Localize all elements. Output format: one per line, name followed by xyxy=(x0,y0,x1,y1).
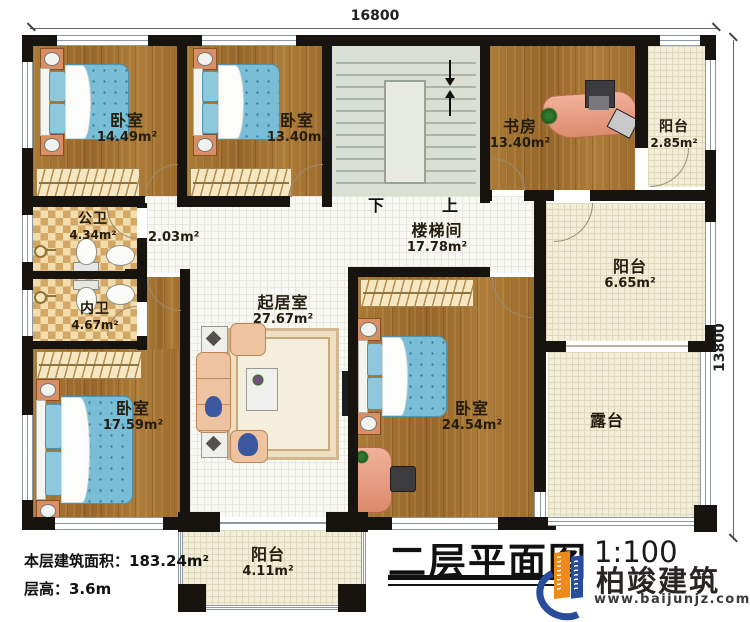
terrace-floor xyxy=(548,352,700,524)
room-label-bedroom-n: 卧室 13.40m² xyxy=(247,112,347,145)
monitor-screen xyxy=(589,96,609,110)
room-name: 阳台 xyxy=(251,546,285,564)
wall-interior xyxy=(348,267,358,517)
wall-interior xyxy=(177,46,187,207)
room-label-public-bath: 公卫 4.34m² xyxy=(53,212,133,242)
room-name: 公卫 xyxy=(78,212,108,228)
hall-area-label: 2.03m² xyxy=(148,230,199,245)
stairs-down-label: 下 xyxy=(368,192,384,216)
window xyxy=(22,290,33,336)
sliding-door-line xyxy=(220,522,326,524)
wall-interior xyxy=(137,203,147,208)
room-label-balcony-e: 阳台 6.65m² xyxy=(578,258,682,291)
room-label-bedroom-sw: 卧室 17.59m² xyxy=(81,400,185,433)
towel-ring xyxy=(34,291,47,304)
terrace-parapet xyxy=(548,517,694,526)
pillar xyxy=(178,512,220,532)
room-label-terrace: 露台 xyxy=(565,412,649,430)
nightstand xyxy=(356,318,381,341)
brand-website: www.baijunjz.com xyxy=(594,592,750,607)
room-area: 4.34m² xyxy=(69,229,116,242)
stair-arrow-line2 xyxy=(449,98,451,116)
armchair xyxy=(230,323,266,356)
balcony-parapet xyxy=(182,605,364,610)
person-figure xyxy=(205,396,222,417)
room-name: 楼梯间 xyxy=(411,222,462,240)
bed-blanket xyxy=(218,65,244,139)
dimension-tick xyxy=(712,22,721,31)
wardrobe xyxy=(360,279,474,307)
dimension-line-right xyxy=(733,40,734,540)
window xyxy=(392,517,498,530)
wall-interior xyxy=(534,277,546,492)
logo-tower-blue xyxy=(571,555,583,598)
wardrobe xyxy=(36,351,142,379)
stair-arrow-down-icon xyxy=(445,78,455,86)
window xyxy=(22,62,33,148)
logo-windows xyxy=(557,556,561,592)
room-area: 13.40m² xyxy=(490,137,550,152)
dimension-width-label: 16800 xyxy=(330,8,420,24)
bed-blanket xyxy=(382,337,408,416)
sink-icon xyxy=(106,245,135,266)
nightstand xyxy=(40,48,64,70)
wardrobe xyxy=(190,168,292,197)
room-area: 13.40m² xyxy=(267,131,327,146)
room-label-bedroom-se: 卧室 24.54m² xyxy=(420,400,524,433)
wardrobe xyxy=(36,168,140,197)
floor-plan-canvas: 卧室 14.49m² 卧室 13.40m² 书房 13.40m² 阳台 2.85… xyxy=(0,0,750,622)
room-name: 露台 xyxy=(590,412,624,430)
pillar xyxy=(694,505,717,532)
room-name: 起居室 xyxy=(257,294,308,312)
floor-height-text: 层高：3.6m xyxy=(24,578,111,599)
room-name: 卧室 xyxy=(110,112,144,130)
room-area: 14.49m² xyxy=(97,131,157,146)
wall-interior xyxy=(534,196,546,277)
wall-interior xyxy=(137,273,147,302)
logo-tower-orange xyxy=(554,551,570,599)
wall-interior xyxy=(125,269,147,277)
room-label-balcony-ne: 阳台 2.85m² xyxy=(636,120,712,150)
terrace-parapet xyxy=(700,352,711,505)
floor-area-text: 本层建筑面积：183.24m² xyxy=(24,550,209,571)
window xyxy=(57,35,148,46)
window xyxy=(22,215,33,262)
wall-interior xyxy=(177,196,290,207)
room-label-bedroom-nw: 卧室 14.49m² xyxy=(77,112,177,145)
terrace-rail-line xyxy=(566,345,688,347)
room-name: 卧室 xyxy=(455,400,489,418)
person-figure xyxy=(238,433,258,456)
room-area: 6.65m² xyxy=(604,277,655,292)
room-name: 阳台 xyxy=(659,120,689,136)
pillow xyxy=(49,71,66,102)
wall-interior xyxy=(137,238,147,273)
stair-arrow-up-icon xyxy=(445,90,455,98)
room-label-study: 书房 13.40m² xyxy=(468,118,572,151)
logo-windows xyxy=(574,560,578,592)
room-area: 4.11m² xyxy=(242,565,293,580)
wall-interior xyxy=(590,190,716,201)
dimension-tick xyxy=(27,22,36,31)
sofa xyxy=(196,352,231,433)
stair-railing xyxy=(384,80,426,184)
window xyxy=(534,492,546,517)
wall-interior xyxy=(33,196,145,207)
pillow xyxy=(202,71,219,102)
room-label-balcony-s: 阳台 4.11m² xyxy=(216,546,320,579)
pillow xyxy=(367,377,383,410)
nightstand xyxy=(40,134,64,156)
room-area: 27.67m² xyxy=(253,313,313,328)
table-flowers xyxy=(252,374,264,386)
window xyxy=(660,35,700,46)
pillar xyxy=(338,584,366,612)
room-area: 2.85m² xyxy=(650,137,697,150)
pillow xyxy=(45,404,62,449)
wall-interior xyxy=(480,190,492,201)
towel-ring xyxy=(34,245,47,258)
dimension-line-top xyxy=(30,28,718,29)
room-name: 卧室 xyxy=(116,400,150,418)
room-name: 书房 xyxy=(503,118,537,136)
wall-interior xyxy=(358,267,490,277)
computer-monitor-icon xyxy=(390,466,416,492)
pillow xyxy=(49,103,66,134)
brand-logo-icon xyxy=(536,548,592,612)
room-label-private-bath: 内卫 4.67m² xyxy=(55,302,135,332)
room-name: 内卫 xyxy=(80,302,110,318)
dimension-height-label: 13800 xyxy=(712,308,728,372)
nightstand xyxy=(193,134,217,156)
room-name: 阳台 xyxy=(613,258,647,276)
nightstand xyxy=(36,379,60,401)
room-name: 卧室 xyxy=(280,112,314,130)
pillar xyxy=(326,512,368,532)
wall-interior xyxy=(534,341,566,352)
stairs-up-label: 上 xyxy=(442,192,458,216)
stair-arrow-line xyxy=(449,60,451,78)
room-area: 17.78m² xyxy=(407,241,467,256)
window xyxy=(202,35,296,46)
wall-interior xyxy=(137,336,147,350)
pillow xyxy=(202,103,219,134)
pillar xyxy=(178,584,206,612)
room-area: 24.54m² xyxy=(442,419,502,434)
room-label-living: 起居室 27.67m² xyxy=(231,294,335,327)
window xyxy=(55,517,163,530)
room-area: 4.67m² xyxy=(71,319,118,332)
wall-interior xyxy=(22,341,147,349)
wall-interior xyxy=(180,269,190,517)
pillow xyxy=(367,343,383,376)
nightstand xyxy=(356,412,381,435)
nightstand xyxy=(193,48,217,70)
pillow xyxy=(45,451,62,496)
room-area: 17.59m² xyxy=(103,419,163,434)
window xyxy=(22,415,33,500)
room-label-stairwell: 楼梯间 17.78m² xyxy=(385,222,489,255)
